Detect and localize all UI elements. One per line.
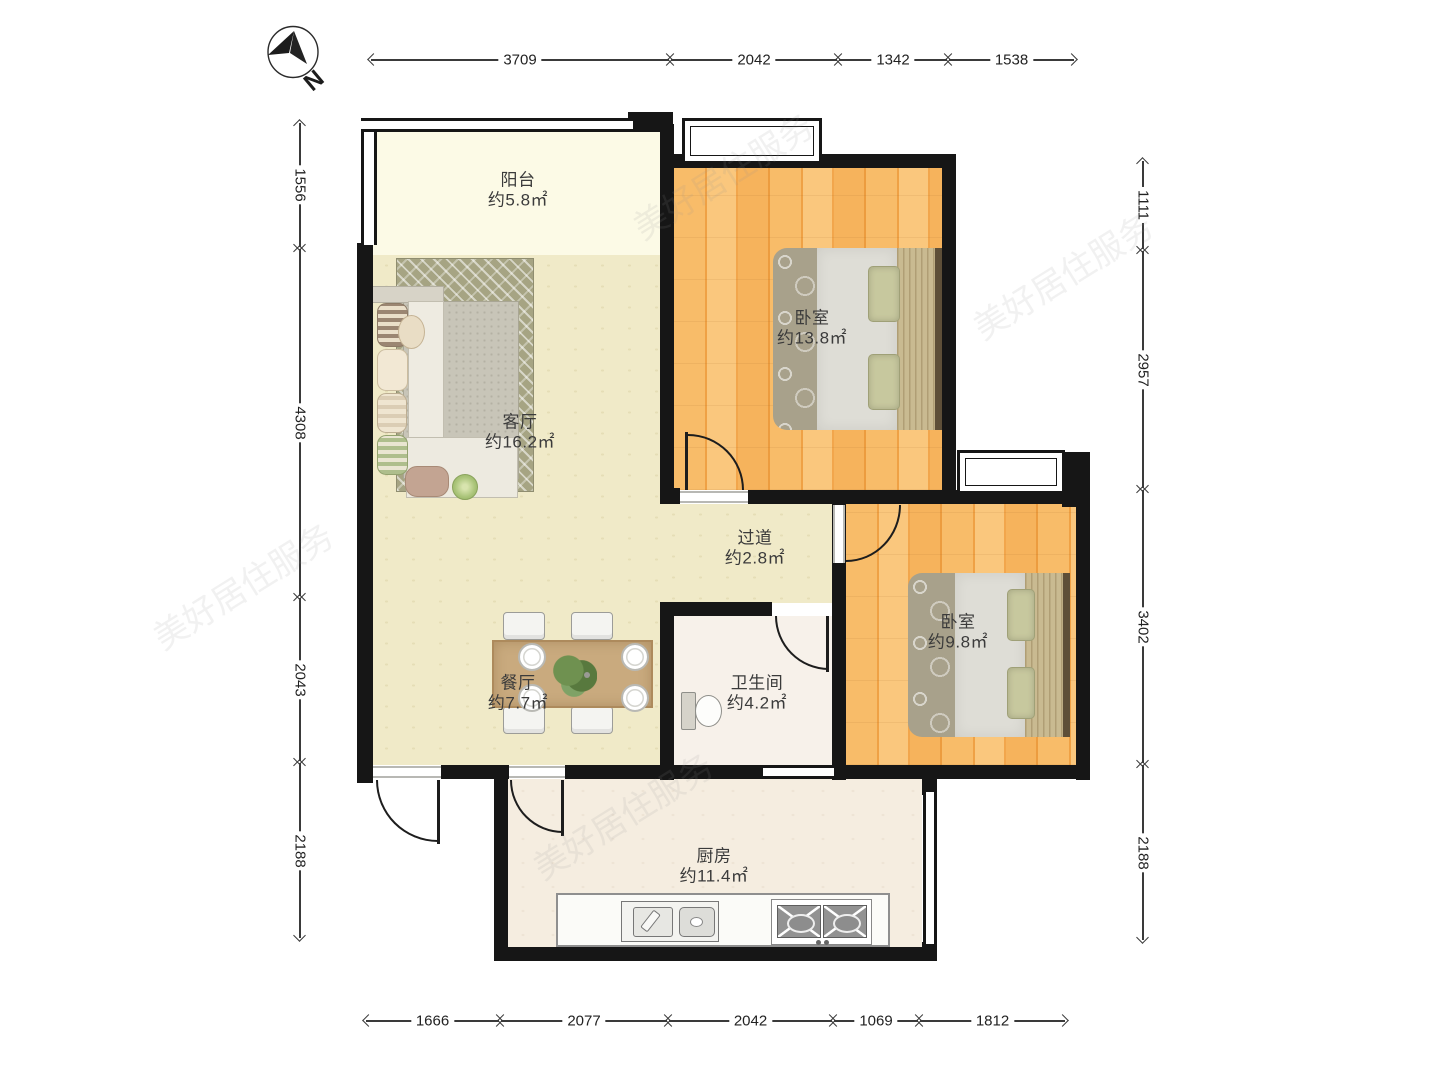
wall: [494, 947, 936, 961]
dimension-1111: 1111: [1133, 160, 1153, 250]
dimension-2188: 2188: [290, 762, 310, 939]
bedroom1-door-leaf: [685, 432, 688, 490]
north-compass: N: [258, 22, 348, 112]
wall: [1076, 452, 1090, 780]
bed-bedroom2: [905, 573, 1070, 737]
room-label-bedroom2: 卧室约9.8㎡: [928, 613, 988, 652]
dimension-2077: 2077: [500, 1011, 668, 1031]
wall: [922, 765, 937, 795]
dimension-2188: 2188: [1133, 764, 1153, 941]
dining-chair: [571, 612, 613, 640]
dimension-2042: 2042: [668, 1011, 833, 1031]
watermark: 美好居住服务: [963, 200, 1162, 350]
wall: [357, 243, 373, 783]
room-label-bathroom: 卫生间约4.2㎡: [727, 674, 787, 713]
dining-chair: [503, 612, 545, 640]
cushion-green-swirl: [452, 474, 478, 500]
balcony-window-left: [361, 118, 377, 245]
dimension-3709: 3709: [370, 50, 670, 70]
bedroom1-bay-window: [682, 118, 822, 164]
kitchen-door-opening: [509, 766, 565, 778]
pillow: [1007, 667, 1035, 719]
dimension-1069: 1069: [833, 1011, 919, 1031]
room-label-dining: 餐厅约7.7㎡: [488, 674, 548, 713]
wall: [832, 765, 1090, 779]
table-flowers: [553, 653, 597, 697]
sofa-pillow-cream: [377, 349, 408, 391]
toilet-tank: [681, 692, 696, 730]
wall: [660, 602, 674, 780]
burner: [777, 905, 821, 938]
wall: [942, 154, 956, 504]
dimension-4308: 4308: [290, 248, 310, 597]
plate: [621, 643, 649, 671]
room-label-living: 客厅约16.2㎡: [485, 413, 555, 452]
room-label-bedroom1: 卧室约13.8㎡: [777, 309, 847, 348]
wall: [660, 602, 772, 616]
wall: [565, 765, 763, 779]
bedroom1-door-opening: [680, 491, 748, 503]
sink-drain: [690, 917, 703, 927]
sofa-pillow-striped-cream: [377, 393, 407, 433]
compass-needle: [268, 31, 294, 55]
pillow: [868, 354, 900, 410]
dimension-1538: 1538: [948, 50, 1075, 70]
entrance-door-arc: [376, 780, 438, 842]
wall: [660, 488, 680, 504]
dimension-2042: 2042: [670, 50, 838, 70]
bathroom-window: [763, 765, 834, 779]
watermark: 美好居住服务: [143, 510, 342, 660]
floor-plan: 阳台约5.8㎡ 客厅约16.2㎡ 卧室约13.8㎡ 过道约2.8㎡ 卧室约9.8…: [0, 0, 1440, 1080]
ottoman-pillow-brown: [405, 466, 449, 497]
dining-chair: [571, 706, 613, 734]
dimension-2043: 2043: [290, 597, 310, 762]
entrance-opening: [373, 766, 441, 778]
room-label-balcony: 阳台约5.8㎡: [488, 171, 548, 210]
wall: [494, 765, 508, 961]
entrance-door-leaf: [437, 780, 440, 844]
dimension-1666: 1666: [365, 1011, 500, 1031]
sofa-pillow-round: [398, 315, 425, 349]
plate: [518, 643, 546, 671]
balcony-window-top: [361, 118, 633, 132]
dimension-2957: 2957: [1133, 250, 1153, 489]
pillow: [1007, 589, 1035, 641]
bedroom2-bay-window: [957, 450, 1065, 494]
wall: [922, 942, 937, 961]
bathroom-door-leaf: [826, 616, 829, 672]
burner: [823, 905, 867, 938]
dimension-1812: 1812: [919, 1011, 1066, 1031]
wall: [660, 124, 674, 490]
plate: [621, 684, 649, 712]
room-label-hallway: 过道约2.8㎡: [725, 529, 785, 568]
kitchen-door-leaf: [561, 780, 564, 836]
bedroom2-door-opening: [833, 505, 845, 563]
sofa-pillow-striped-green: [377, 435, 408, 475]
room-label-kitchen: 厨房约11.4㎡: [680, 847, 749, 886]
stove-knob: [824, 940, 829, 945]
pillow: [868, 266, 900, 322]
kitchen-window: [923, 792, 937, 944]
toilet-bowl: [695, 695, 722, 727]
stove-knob: [816, 940, 821, 945]
table-accessory: [584, 672, 590, 678]
dimension-1342: 1342: [838, 50, 948, 70]
dimension-3402: 3402: [1133, 489, 1153, 764]
north-label: N: [299, 65, 330, 97]
dimension-1556: 1556: [290, 122, 310, 248]
